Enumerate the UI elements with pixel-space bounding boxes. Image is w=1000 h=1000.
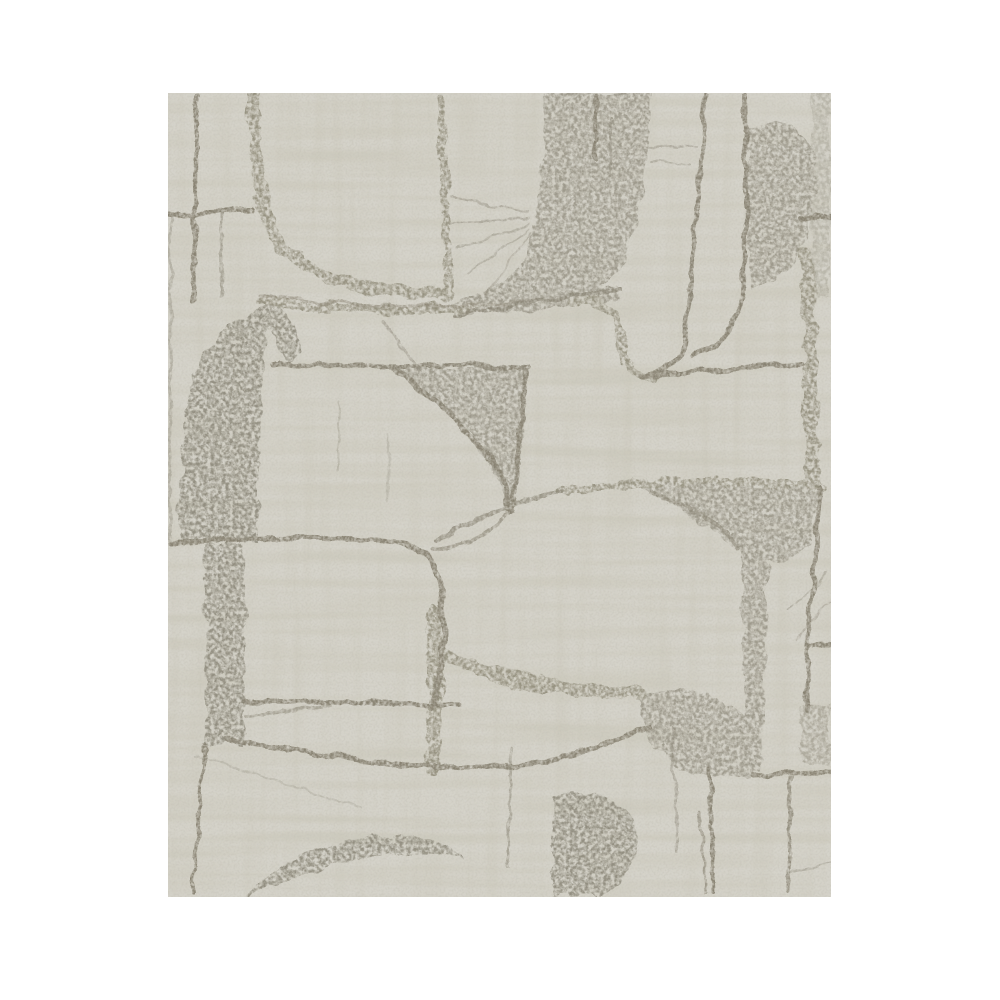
pattern-shapes	[168, 92, 833, 897]
wallpaper-swatch: Abstract wallpaper swatch with textured …	[0, 0, 1000, 1000]
wallpaper-product-image: Abstract wallpaper swatch with textured …	[0, 0, 1000, 1000]
texture-grain	[168, 93, 831, 897]
